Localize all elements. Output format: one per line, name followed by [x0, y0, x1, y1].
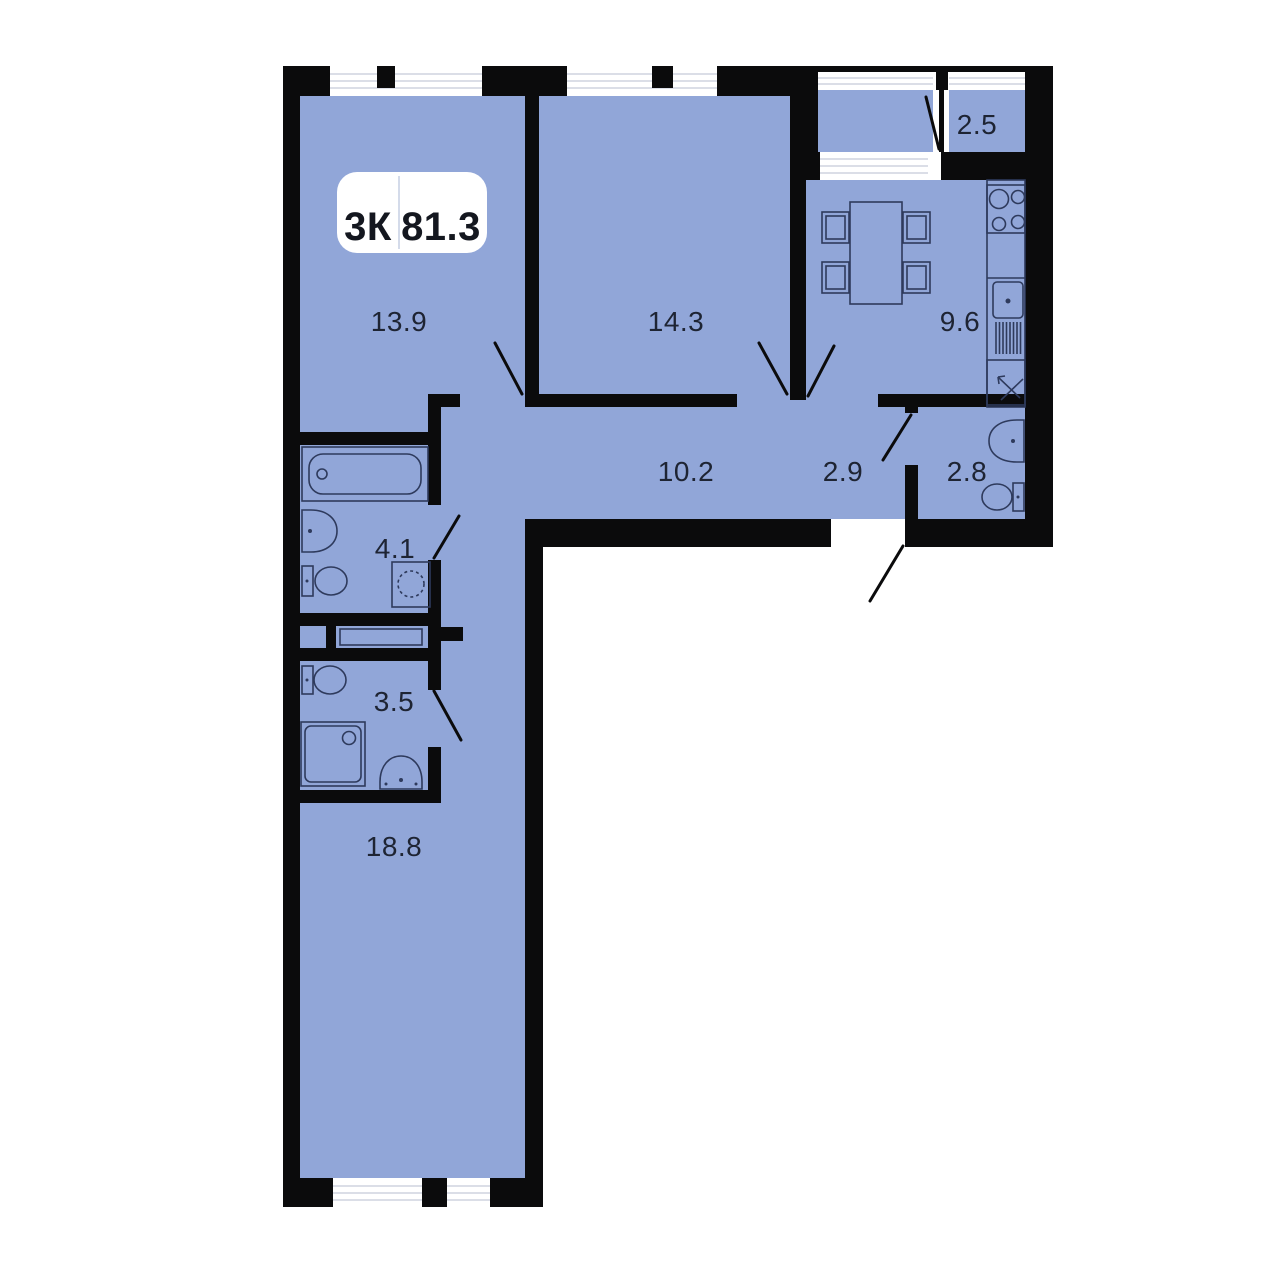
- room-area-label-bedroom: 14.3: [648, 306, 705, 337]
- floor-plan-page: 13.9 14.3 9.6 2.5 10.2 2.9 2.8 4.1 3.5 1…: [0, 0, 1280, 1280]
- window-master-room-left: [333, 1178, 422, 1207]
- window-kitchen: [820, 152, 941, 180]
- floor-plan-canvas: 13.9 14.3 9.6 2.5 10.2 2.9 2.8 4.1 3.5 1…: [0, 0, 1280, 1280]
- badge-rooms-count: 3К: [344, 205, 392, 249]
- window-bedroom: [567, 66, 717, 96]
- entrance-opening: [831, 519, 905, 547]
- room-area-label-kitchen: 9.6: [940, 306, 980, 337]
- window-living-room: [330, 66, 482, 96]
- window-master-room-right: [447, 1178, 490, 1207]
- door-swing-entrance: [870, 546, 903, 601]
- room-area-label-entry-hall: 2.9: [823, 456, 863, 487]
- room-area-label-corridor: 10.2: [658, 456, 715, 487]
- balcony-door-opening: [928, 152, 941, 180]
- balcony-railing: [818, 66, 1025, 72]
- apartment-badge: 3К 81.3: [337, 172, 487, 253]
- room-area-label-shower-wc: 3.5: [374, 686, 414, 717]
- room-area-label-bathroom: 4.1: [375, 533, 415, 564]
- room-area-label-balcony: 2.5: [957, 109, 997, 140]
- window-pier: [425, 1178, 447, 1207]
- room-area-label-master-room: 18.8: [366, 831, 423, 862]
- room-area-label-living-room: 13.9: [371, 306, 428, 337]
- badge-total-area: 81.3: [401, 205, 481, 249]
- room-area-label-guest-bathroom: 2.8: [947, 456, 987, 487]
